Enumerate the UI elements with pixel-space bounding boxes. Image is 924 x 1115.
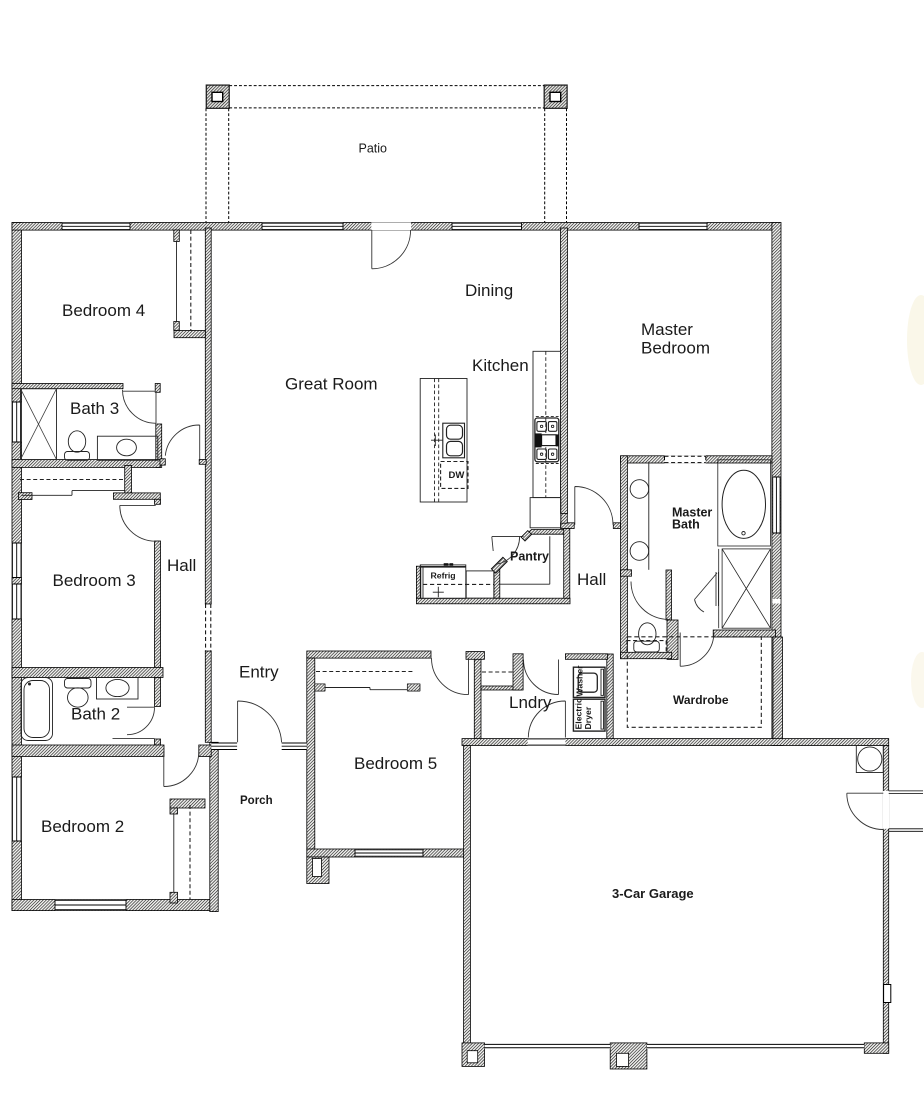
svg-text:Bedroom 2: Bedroom 2 xyxy=(41,817,124,836)
svg-text:Bath 2: Bath 2 xyxy=(71,705,120,724)
svg-text:Great Room: Great Room xyxy=(285,375,378,394)
svg-text:Bedroom: Bedroom xyxy=(641,339,710,358)
svg-text:Washer: Washer xyxy=(575,665,585,697)
svg-text:Bath 3: Bath 3 xyxy=(70,399,119,418)
svg-text:Kitchen: Kitchen xyxy=(472,356,529,375)
svg-text:Wardrobe: Wardrobe xyxy=(673,693,729,707)
svg-text:Lndry: Lndry xyxy=(509,693,552,712)
svg-text:Bedroom 5: Bedroom 5 xyxy=(354,754,437,773)
svg-text:Hall: Hall xyxy=(167,556,196,575)
svg-text:Entry: Entry xyxy=(239,663,279,682)
svg-text:Refrig: Refrig xyxy=(431,571,456,581)
svg-text:Patio: Patio xyxy=(359,142,388,156)
svg-text:DW: DW xyxy=(449,470,465,481)
svg-text:Pantry: Pantry xyxy=(510,550,549,564)
svg-text:Bedroom 3: Bedroom 3 xyxy=(53,571,136,590)
svg-text:Dryer: Dryer xyxy=(583,706,593,729)
svg-text:Porch: Porch xyxy=(240,795,273,807)
svg-text:3-Car Garage: 3-Car Garage xyxy=(612,886,694,901)
svg-text:Master: Master xyxy=(641,320,693,339)
svg-text:Dining: Dining xyxy=(465,281,513,300)
svg-text:Hall: Hall xyxy=(577,570,606,589)
svg-text:Bath: Bath xyxy=(672,518,700,532)
svg-text:Bedroom 4: Bedroom 4 xyxy=(62,301,145,320)
svg-text:Electric: Electric xyxy=(574,698,584,730)
